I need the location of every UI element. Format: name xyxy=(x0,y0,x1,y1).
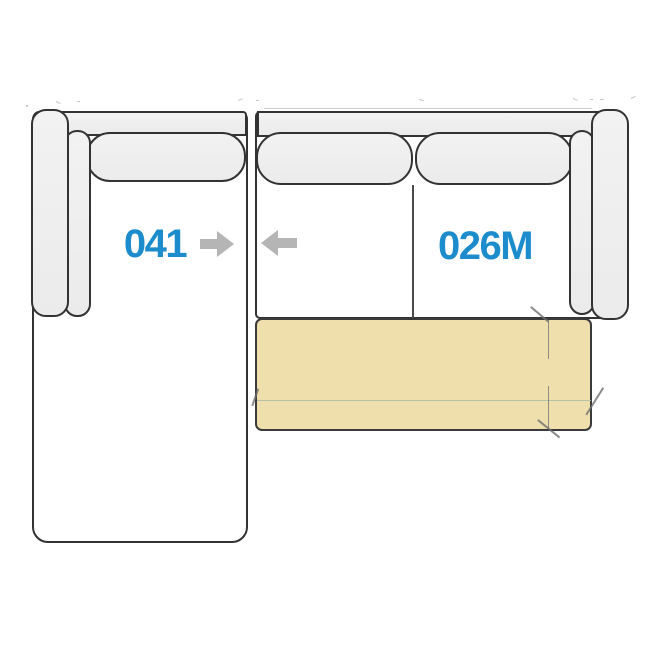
armrest-right xyxy=(591,109,629,320)
back-cushion-2 xyxy=(415,132,573,185)
module-label-026m: 026M xyxy=(425,224,545,268)
arrow-left-shaft xyxy=(277,238,297,248)
dimension-tick-artifact xyxy=(26,105,28,107)
back-cushion xyxy=(86,132,246,182)
module-label-041: 041 xyxy=(95,222,215,266)
mattress-fold-line-vertical xyxy=(548,386,549,429)
fold-out-mattress xyxy=(255,318,592,431)
dimension-tick-artifact xyxy=(256,100,259,101)
dimension-tick-artifact xyxy=(573,98,578,101)
arrow-left-head xyxy=(261,230,278,256)
dimension-tick-artifact xyxy=(600,99,604,100)
faint-top-line-artifact xyxy=(264,108,592,109)
seat-divider-line xyxy=(412,185,414,318)
dimension-tick-artifact xyxy=(77,101,80,102)
dimension-tick-artifact xyxy=(56,101,61,104)
mattress-fold-line-horizontal xyxy=(257,400,591,401)
dimension-tick-artifact xyxy=(590,99,593,100)
dimension-tick-artifact xyxy=(631,96,636,99)
arrow-right-head xyxy=(217,231,234,257)
back-cushion-1 xyxy=(256,132,413,185)
dimension-tick-artifact xyxy=(238,98,243,101)
dimension-tick-artifact xyxy=(419,99,424,101)
armrest-left xyxy=(31,109,69,317)
mattress-fold-line-vertical xyxy=(548,320,549,359)
sofa-plan-diagram: 041 026M xyxy=(0,0,650,650)
